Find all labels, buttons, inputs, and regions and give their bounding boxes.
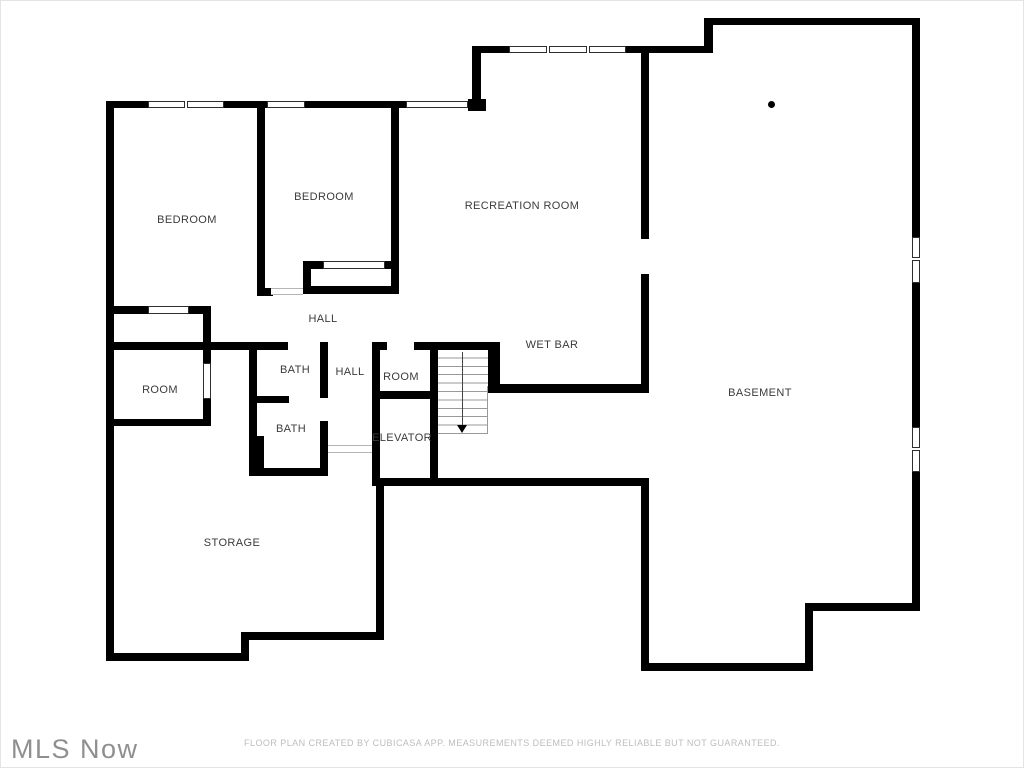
wall [805, 603, 920, 611]
stairs-down-arrow-icon [457, 425, 467, 433]
room-label-bedroom-right: BEDROOM [294, 191, 354, 203]
room-label-basement: BASEMENT [728, 387, 792, 399]
wall [488, 384, 649, 393]
window-mullion [912, 257, 920, 261]
wall [372, 391, 438, 399]
room-label-room-left: ROOM [142, 384, 178, 396]
room-label-wet-bar: WET BAR [526, 339, 579, 351]
wall [805, 603, 813, 671]
wall [372, 342, 380, 486]
wall [203, 350, 211, 364]
wall [106, 419, 211, 426]
room-label-recreation-room: RECREATION ROOM [465, 200, 580, 212]
staircase-edge [487, 386, 488, 434]
wall [320, 342, 328, 398]
wall [373, 478, 649, 486]
wall [249, 396, 289, 403]
door-opening [271, 288, 303, 295]
wall [303, 286, 399, 294]
wall [249, 436, 264, 476]
window [323, 261, 385, 269]
wall [257, 101, 265, 296]
wall [704, 18, 920, 25]
wall [414, 342, 500, 350]
wall [376, 478, 384, 640]
wall [912, 18, 920, 611]
wall [641, 46, 649, 239]
door-opening [328, 445, 372, 453]
staircase [438, 350, 488, 434]
room-label-room-small: ROOM [383, 371, 419, 383]
wall [641, 274, 649, 393]
wall [241, 632, 384, 640]
wall [430, 342, 438, 486]
wall [106, 342, 288, 350]
door-pivot-dot [768, 101, 775, 108]
room-label-elevator: ELEVATOR [372, 432, 432, 444]
wall [641, 478, 649, 671]
room-label-bath-lower: BATH [276, 423, 306, 435]
room-label-hall-lower: HALL [335, 366, 364, 378]
window-mullion [586, 46, 590, 53]
staircase-direction-line [462, 352, 463, 425]
room-label-storage: STORAGE [204, 537, 260, 549]
wall [203, 306, 211, 343]
disclaimer-text: FLOOR PLAN CREATED BY CUBICASA APP. MEAS… [244, 738, 780, 748]
room-label-hall-upper: HALL [308, 313, 337, 325]
wall [468, 99, 486, 111]
room-label-bedroom-left: BEDROOM [157, 214, 217, 226]
window-mullion [184, 101, 188, 108]
wall [106, 653, 249, 661]
wall [106, 101, 114, 661]
floor-plan-image: BEDROOM BEDROOM RECREATION ROOM HALL WET… [0, 0, 1024, 768]
wall [641, 663, 813, 671]
room-label-bath-upper: BATH [280, 364, 310, 376]
window [203, 363, 211, 399]
wall [384, 261, 399, 269]
window-mullion [546, 46, 550, 53]
mls-now-logo: MLS Now [11, 734, 139, 765]
window [406, 101, 468, 108]
window [148, 306, 189, 314]
window [267, 101, 305, 108]
window [509, 46, 626, 53]
window-mullion [912, 447, 920, 451]
